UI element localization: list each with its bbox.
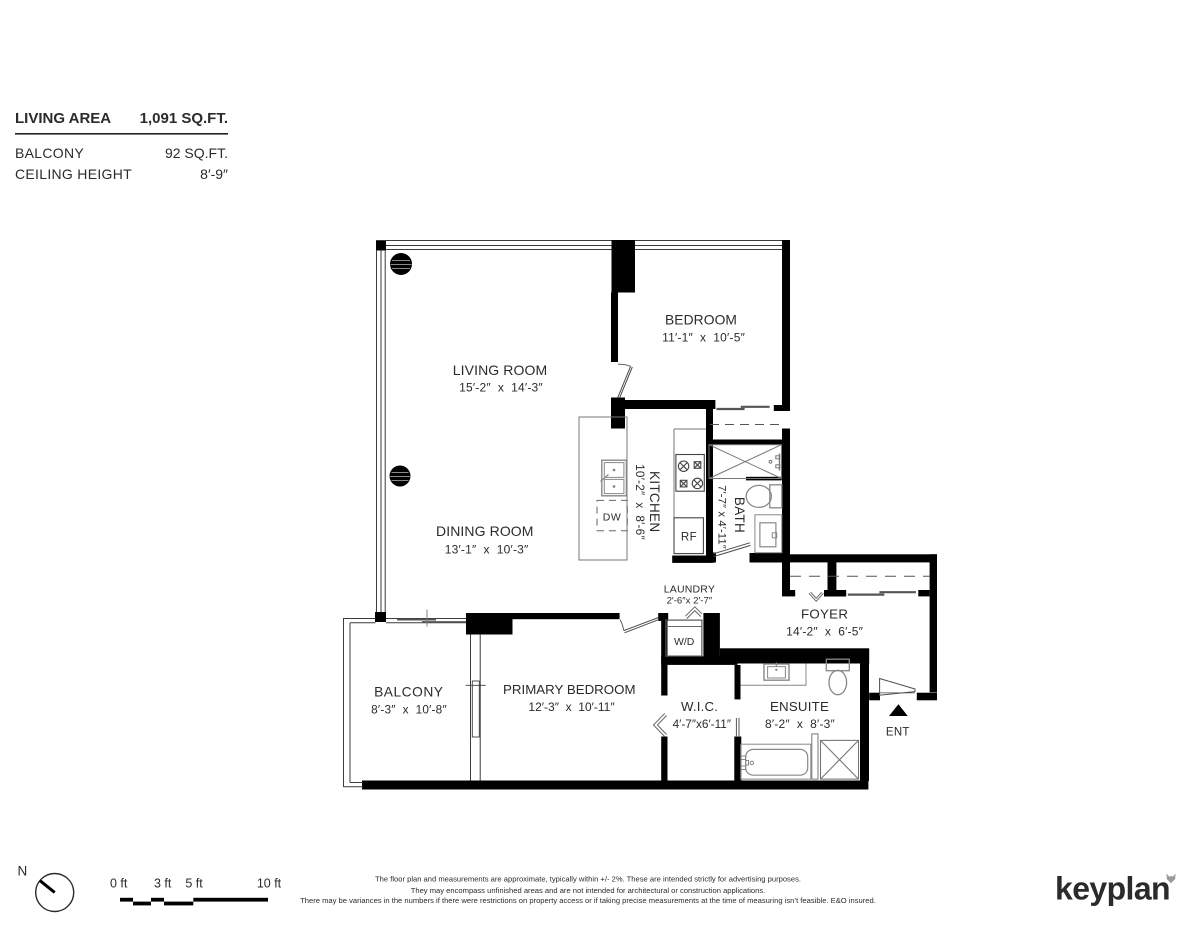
svg-text:8′-3″ x 10′-8″: 8′-3″ x 10′-8″ <box>371 703 447 717</box>
svg-text:13′-1″ x 10′-3″: 13′-1″ x 10′-3″ <box>445 542 529 556</box>
svg-text:11′-1″ x 10′-5″: 11′-1″ x 10′-5″ <box>662 330 745 344</box>
svg-text:N: N <box>18 864 28 879</box>
svg-text:LAUNDRY: LAUNDRY <box>664 584 715 596</box>
svg-text:W.I.C.: W.I.C. <box>681 699 718 714</box>
svg-text:LIVING AREA: LIVING AREA <box>15 110 111 127</box>
svg-text:ENSUITE: ENSUITE <box>770 699 829 714</box>
svg-text:7′-7″ x 4′-11″: 7′-7″ x 4′-11″ <box>716 485 728 549</box>
svg-text:2′-6″x 2′-7″: 2′-6″x 2′-7″ <box>667 595 713 606</box>
svg-text:There may be variances in the: There may be variances in the numbers if… <box>300 896 876 905</box>
svg-text:PRIMARY BEDROOM: PRIMARY BEDROOM <box>503 682 636 697</box>
svg-text:DINING ROOM: DINING ROOM <box>436 523 534 539</box>
svg-text:15′-2″ x 14′-3″: 15′-2″ x 14′-3″ <box>459 381 543 395</box>
svg-text:10 ft: 10 ft <box>257 877 282 891</box>
svg-text:8′-9″: 8′-9″ <box>200 166 228 182</box>
svg-text:8′-2″ x 8′-3″: 8′-2″ x 8′-3″ <box>765 717 836 731</box>
svg-text:BATH: BATH <box>732 497 747 533</box>
svg-text:12′-3″ x 10′-11″: 12′-3″ x 10′-11″ <box>528 700 615 714</box>
svg-text:10′-2″ x 8′-6″: 10′-2″ x 8′-6″ <box>633 464 647 540</box>
svg-text:0 ft: 0 ft <box>110 877 128 891</box>
svg-text:keyplan: keyplan <box>1055 871 1170 907</box>
svg-text:3 ft: 3 ft <box>154 877 172 891</box>
svg-text:92 SQ.FT.: 92 SQ.FT. <box>165 145 228 161</box>
svg-text:LIVING ROOM: LIVING ROOM <box>453 362 547 378</box>
svg-text:FOYER: FOYER <box>801 607 848 622</box>
svg-text:The floor plan and measurement: The floor plan and measurements are appr… <box>375 875 801 884</box>
svg-text:BEDROOM: BEDROOM <box>665 313 737 328</box>
svg-text:5 ft: 5 ft <box>185 877 203 891</box>
svg-text:BALCONY: BALCONY <box>374 684 443 699</box>
svg-text:They may encompass unfinished: They may encompass unfinished areas and … <box>411 886 766 895</box>
svg-text:CEILING HEIGHT: CEILING HEIGHT <box>15 166 132 182</box>
svg-text:ENT: ENT <box>886 727 910 739</box>
svg-text:KITCHEN: KITCHEN <box>647 471 662 532</box>
svg-text:4′-7″x6′-11″: 4′-7″x6′-11″ <box>673 717 731 731</box>
svg-text:RF: RF <box>681 532 697 544</box>
svg-text:14′-2″ x 6′-5″: 14′-2″ x 6′-5″ <box>786 625 863 639</box>
svg-text:BALCONY: BALCONY <box>15 145 84 161</box>
svg-text:W/D: W/D <box>674 636 695 648</box>
svg-text:1,091 SQ.FT.: 1,091 SQ.FT. <box>140 110 228 127</box>
svg-text:DW: DW <box>603 511 622 523</box>
